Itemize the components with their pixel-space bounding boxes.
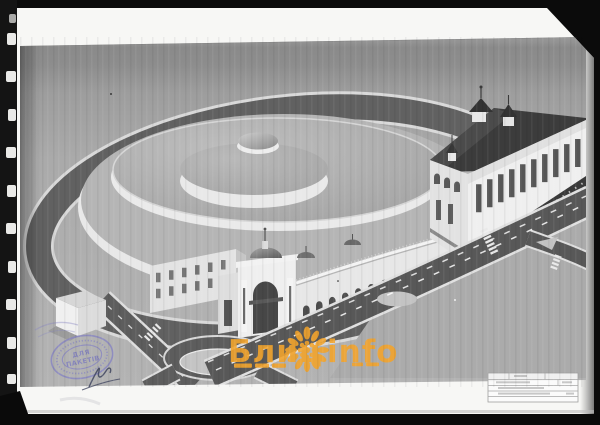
entrance-arch <box>253 281 278 334</box>
paper-sheet: Блиц info <box>14 8 594 414</box>
bus-bay <box>377 292 417 307</box>
torn-left-edge <box>0 0 17 425</box>
scanned-architectural-rendering: Блиц info <box>0 0 600 425</box>
circus-dome <box>238 133 278 150</box>
watermark-tagline-left <box>234 364 286 368</box>
title-block <box>488 373 578 402</box>
circus-building <box>111 118 445 231</box>
watermark: Блиц info <box>228 327 398 373</box>
render-image: Блиц info <box>20 28 594 388</box>
